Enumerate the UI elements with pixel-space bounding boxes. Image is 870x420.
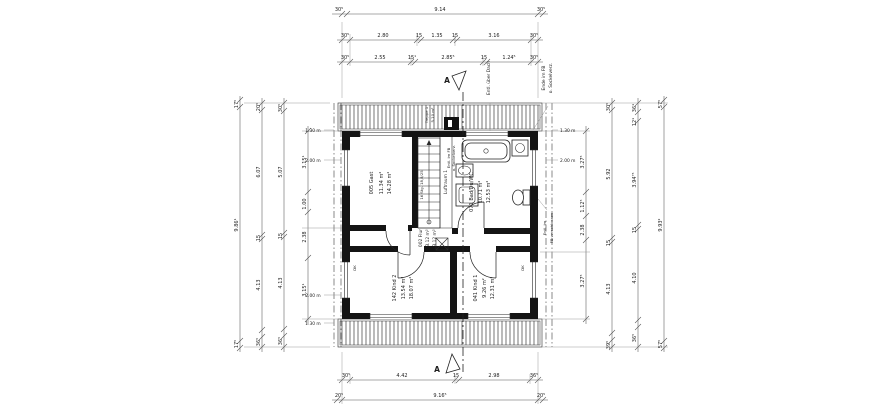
dim-label: 36⁵	[530, 373, 538, 379]
dim-label: 2.98	[488, 373, 499, 379]
stairs-note: 16 Stg. 18,8/25	[419, 170, 424, 200]
dim-label: 30⁵	[278, 104, 284, 112]
height-label-200: 2.00 m	[305, 158, 320, 164]
bathtub	[462, 140, 510, 162]
dim-label: 2.38	[302, 231, 308, 242]
roof-overhang-bottom	[338, 319, 542, 347]
dim-label: 1.24⁵	[502, 55, 515, 61]
section-letter-bottom: A	[434, 365, 440, 374]
right-note-line2: FB verschlossen	[549, 212, 554, 243]
dim-label: 36⁵	[256, 338, 262, 346]
room-name: 002 Flur	[418, 229, 424, 247]
height-label-130: 1.30 m	[305, 321, 320, 327]
dim-label: 12¹	[632, 118, 638, 126]
room-name: 005 Gast	[369, 172, 375, 195]
dim-label: 30⁵	[341, 55, 349, 61]
dim-label: 6.07	[256, 166, 262, 177]
dim-labels-left: 17⁵ 9.86¹ 17⁵ 20⁵ 6.07 15 4.13 36⁵ 30⁵ 5…	[234, 100, 308, 348]
dim-label: 2.85⁵	[441, 55, 454, 61]
bath-note-line2: o. Sockelverz.	[451, 145, 456, 171]
dim-label: 30⁵	[530, 33, 538, 39]
dim-label: 30⁵	[341, 33, 349, 39]
washing-machine	[512, 140, 528, 156]
roof-overhang-top	[338, 103, 542, 131]
dim-label: 17⁵	[234, 100, 240, 108]
dim-label: 30⁵	[537, 7, 545, 13]
dim-label: 3.27⁵	[580, 274, 586, 287]
dim-label: 4.13	[606, 283, 612, 294]
dim-label: 15	[416, 33, 422, 39]
dim-label: 3.27⁵	[580, 155, 586, 168]
dim-label: 9.16⁵	[433, 393, 446, 399]
dim-label: 5.07	[278, 166, 284, 177]
window-code-left: DK	[352, 265, 357, 271]
room-area: 13.54 m²	[401, 277, 407, 300]
dim-label: 15	[256, 235, 262, 241]
room-area: 10.71 m²	[478, 181, 484, 204]
dim-label: 2.55	[374, 55, 385, 61]
room-label-kind1: 041 Kind 1 9.26 m² 12.31 m²	[473, 275, 496, 302]
room-name: 071 Bad/Du/WC	[469, 172, 475, 212]
chimney-flue	[448, 120, 452, 127]
dim-label: 15	[278, 233, 284, 239]
room-area: 12.53 m²	[486, 181, 492, 204]
dim-label: 30⁵	[335, 7, 343, 13]
section-letter-top: A	[444, 76, 450, 85]
dim-label: 30⁵	[606, 103, 612, 111]
dim-label: 15¹	[408, 55, 416, 61]
room-label-gast: 005 Gast 11.34 m² 14.28 m²	[369, 172, 393, 195]
dim-labels-top: 30⁵ 9.14 30⁵ 30⁵ 2.80 15 1.35 15 3.16 30…	[335, 7, 545, 61]
height-label-200: 2.00 m	[305, 293, 320, 299]
dim-label: 15	[632, 227, 638, 233]
room-name: 041 Kind 1	[473, 275, 479, 302]
dim-label: 9.86¹	[234, 218, 240, 231]
dim-label: 1.12⁵	[580, 199, 586, 212]
dim-label: 20⁵	[256, 103, 262, 111]
dim-label: 2.80	[377, 33, 388, 39]
dim-label: 57⁵	[658, 340, 664, 348]
window-code-right: DK	[520, 265, 525, 271]
room-area: 12.31 m²	[490, 277, 496, 300]
room-area-treppe: 5.10 m²	[430, 107, 435, 122]
toilet	[513, 190, 531, 205]
dim-label: 3.16	[488, 33, 499, 39]
dim-label: 1.35	[431, 33, 442, 39]
room-area: 14.28 m²	[387, 172, 393, 195]
dim-label: 17⁵	[234, 340, 240, 348]
dim-label: 5.92	[606, 168, 612, 179]
room-area: 3.12 m²	[425, 229, 431, 246]
room-label-flur: 002 Flur 3.12 m² 3.12 m²	[418, 229, 438, 247]
dim-label: 3.94⁷⁵	[632, 172, 638, 187]
room-label-treppe: Treppe 1	[424, 106, 429, 124]
dim-label: 1.00	[302, 198, 308, 209]
room-label-bad: 071 Bad/Du/WC 10.71 m² 12.53 m²	[469, 172, 492, 212]
room-label-luftraum: Luftraum 1	[443, 170, 449, 194]
dim-labels-right: 3.27⁵ 1.12⁵ 2.38 3.27⁵ 30⁵ 5.92 15 4.13 …	[580, 100, 664, 349]
room-area: 9.26 m²	[482, 278, 488, 298]
corner-note-line1: Ende im FB	[541, 66, 547, 91]
height-label-130: 1.30 m	[305, 128, 320, 134]
floor-plan-drawing: 30⁵ 9.14 30⁵ 30⁵ 2.80 15 1.35 15 3.16 30…	[0, 0, 870, 420]
room-name: 142 Kind 2	[392, 275, 398, 302]
dim-label: 9.93²	[658, 218, 664, 231]
dim-label: 57⁵	[658, 100, 664, 108]
height-label-130: 1.30 m	[560, 128, 575, 134]
dim-label: 15	[452, 33, 458, 39]
dim-label: 36⁵	[632, 334, 638, 342]
floor-plan-page: 30⁵ 9.14 30⁵ 30⁵ 2.80 15 1.35 15 3.16 30…	[0, 0, 870, 420]
dim-label: 20⁵	[335, 393, 343, 399]
dim-labels-bottom: 30⁵ 4.42 15 2.98 36⁵ 20⁵ 9.16⁵ 20⁵	[335, 373, 545, 399]
dim-label: 36⁵	[278, 337, 284, 345]
dim-label: 2.38	[580, 224, 586, 235]
dim-label: 15	[481, 55, 487, 61]
room-area: 3.12 m²	[432, 229, 438, 246]
height-label-200: 2.00 m	[560, 158, 575, 164]
dim-label: 15	[606, 240, 612, 246]
dim-label: 36¹	[632, 104, 638, 112]
dim-label: 9.14	[434, 7, 445, 13]
room-area: 18.07 m²	[409, 277, 415, 300]
right-note-leader	[538, 199, 547, 210]
door-arcs	[386, 202, 496, 278]
dim-label: 4.13	[278, 277, 284, 288]
dim-label: 30⁵	[530, 55, 538, 61]
dim-label: 4.10	[632, 272, 638, 283]
dim-label: 30⁵	[342, 373, 350, 379]
dim-label: 4.13	[256, 279, 262, 290]
room-area: 11.34 m²	[379, 172, 385, 195]
vent-roof-note: Entl. über Dach	[486, 61, 492, 95]
corner-note-line2: o. Sockelverz.	[548, 63, 554, 93]
room-label-kind2: 142 Kind 2 13.54 m² 18.07 m²	[392, 275, 415, 302]
dim-label: 4.42	[396, 373, 407, 379]
dim-label: 39⁵	[606, 341, 612, 349]
dim-label: 20⁵	[537, 393, 545, 399]
right-note-line1: Entl. im	[542, 220, 547, 235]
dim-label: 15	[453, 373, 459, 379]
